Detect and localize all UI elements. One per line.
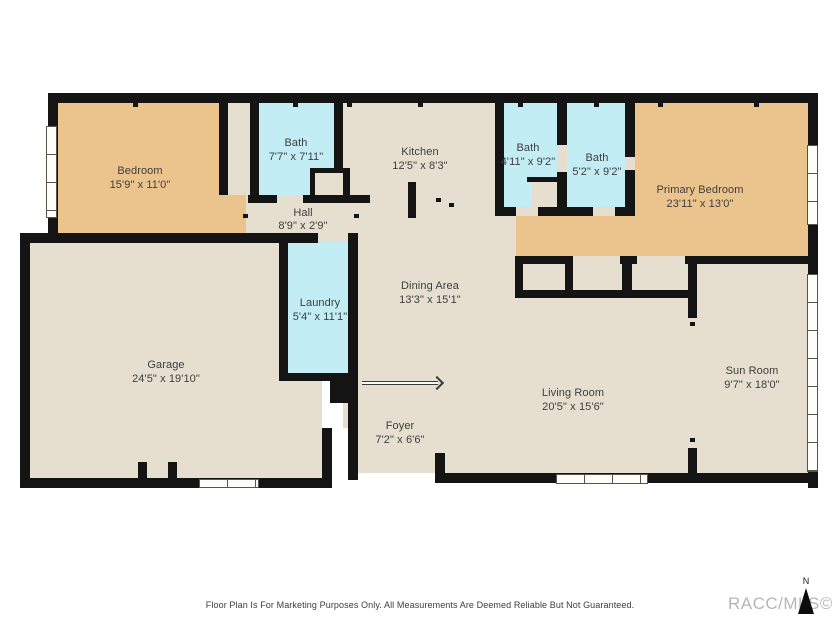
wall bbox=[625, 100, 635, 157]
room-name: Bedroom bbox=[60, 164, 220, 178]
compass: N bbox=[791, 576, 821, 614]
wall bbox=[622, 256, 632, 298]
room-dims: 15'9" x 11'0" bbox=[60, 178, 220, 192]
wall bbox=[565, 256, 573, 298]
room-label-bath-3: Bath 5'2" x 9'2" bbox=[517, 151, 677, 179]
room-dims: 9'7" x 18'0" bbox=[672, 378, 832, 392]
room-label-dining-area: Dining Area 13'3" x 15'1" bbox=[350, 279, 510, 307]
wall bbox=[20, 478, 332, 488]
window bbox=[556, 474, 648, 484]
window-marker bbox=[518, 103, 523, 107]
room-label-primary-bedroom: Primary Bedroom 23'11" x 13'0" bbox=[620, 183, 780, 211]
compass-north-label: N bbox=[791, 576, 821, 586]
door-marker bbox=[449, 203, 454, 207]
room-dims: 24'5" x 19'10" bbox=[86, 372, 246, 386]
room-label-living-room: Living Room 20'5" x 15'6" bbox=[493, 386, 653, 414]
room-dims: 5'4" x 11'1" bbox=[240, 310, 400, 324]
room-name: Living Room bbox=[493, 386, 653, 400]
primary-bedroom-floor-strip bbox=[516, 216, 635, 256]
window bbox=[807, 145, 818, 225]
wall bbox=[343, 168, 350, 203]
wall bbox=[48, 93, 818, 103]
room-name: Bath bbox=[517, 151, 677, 165]
wall bbox=[310, 168, 315, 203]
room-dims: 13'3" x 15'1" bbox=[350, 293, 510, 307]
room-label-bedroom: Bedroom 15'9" x 11'0" bbox=[60, 164, 220, 192]
room-dims: 5'2" x 9'2" bbox=[517, 165, 677, 179]
window-marker bbox=[347, 103, 352, 107]
room-name: Garage bbox=[86, 358, 246, 372]
room-dims: 8'9" x 2'9" bbox=[223, 220, 383, 233]
wall bbox=[138, 462, 147, 478]
window-marker bbox=[293, 103, 298, 107]
wall bbox=[688, 256, 697, 318]
wall bbox=[515, 290, 697, 298]
wall bbox=[515, 256, 523, 298]
room-dims: 20'5" x 15'6" bbox=[493, 400, 653, 414]
room-label-hall: Hall 8'9" x 2'9" bbox=[223, 207, 383, 233]
window-marker bbox=[133, 103, 138, 107]
window-marker bbox=[658, 103, 663, 107]
garage-floor-extension bbox=[279, 381, 322, 478]
door-marker bbox=[690, 438, 695, 442]
window-marker bbox=[594, 103, 599, 107]
room-name: Sun Room bbox=[672, 364, 832, 378]
wall bbox=[515, 256, 572, 264]
room-name: Dining Area bbox=[350, 279, 510, 293]
window bbox=[46, 126, 57, 218]
window bbox=[199, 479, 259, 488]
room-label-sun-room: Sun Room 9'7" x 18'0" bbox=[672, 364, 832, 392]
wall bbox=[435, 453, 445, 483]
room-dims: 23'11" x 13'0" bbox=[620, 197, 780, 211]
room-name: Primary Bedroom bbox=[620, 183, 780, 197]
north-arrow-icon bbox=[798, 588, 814, 614]
window-marker bbox=[754, 103, 759, 107]
door-marker bbox=[436, 198, 441, 202]
room-name: Hall bbox=[223, 207, 383, 220]
bath-2-closet-floor bbox=[532, 182, 557, 207]
floor-plan: Bedroom 15'9" x 11'0" Bath 7'7" x 7'11" … bbox=[0, 0, 840, 630]
wall bbox=[20, 233, 30, 488]
entry-arrow-line bbox=[362, 381, 438, 385]
door-marker bbox=[690, 322, 695, 326]
wall bbox=[685, 256, 818, 264]
room-label-garage: Garage 24'5" x 19'10" bbox=[86, 358, 246, 386]
wall bbox=[20, 233, 318, 243]
wall bbox=[408, 182, 416, 218]
window-marker bbox=[418, 103, 423, 107]
wall bbox=[688, 448, 697, 483]
wall bbox=[168, 462, 177, 478]
room-name: Foyer bbox=[320, 419, 480, 433]
room-dims: 7'2" x 6'6" bbox=[320, 433, 480, 447]
wall bbox=[557, 100, 567, 145]
room-label-foyer: Foyer 7'2" x 6'6" bbox=[320, 419, 480, 447]
disclaimer-text: Floor Plan Is For Marketing Purposes Onl… bbox=[0, 600, 840, 610]
bath-1-closet-floor bbox=[315, 173, 343, 195]
